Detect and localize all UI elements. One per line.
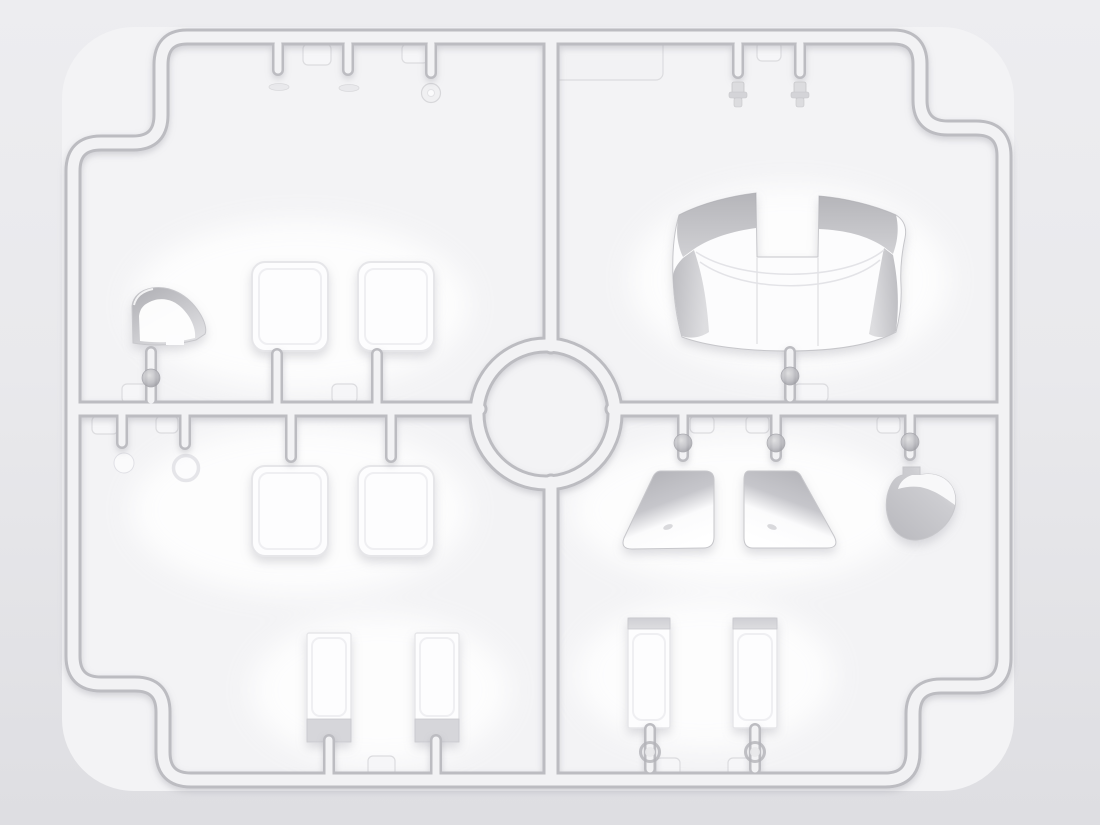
runner-tab — [746, 416, 769, 433]
ghost-lens-part: Faint lens ring — [174, 456, 199, 481]
stem-loop-hole — [787, 353, 794, 366]
side-window-part: Side window glazing pane 3 — [252, 466, 328, 556]
runner-tab — [156, 416, 178, 433]
ball-joint — [767, 434, 785, 452]
sprue-render-stage: Small curved windscreen Side window glaz… — [0, 0, 1100, 825]
glazing-strip-part: Glazing strip — [307, 633, 351, 742]
glazing-strip-part: Glazing strip — [628, 618, 670, 728]
ball-joint — [674, 434, 692, 452]
side-window-part: Side window glazing pane 1 — [252, 262, 328, 351]
runner-tab — [877, 416, 900, 433]
glazing-strip-part: Glazing strip — [415, 633, 459, 742]
runner-tab — [332, 384, 357, 403]
sprue-render: Small curved windscreen Side window glaz… — [0, 0, 1100, 825]
lens-sliver-part: Small lens sliver — [339, 85, 359, 92]
ghost-lens-part: Faint round lens — [114, 453, 134, 473]
lens-ring-part: Round light lens — [422, 84, 441, 103]
runner-tab — [402, 44, 428, 63]
ball-joint — [781, 367, 799, 385]
ball-joint — [142, 369, 160, 387]
runner-tab — [303, 44, 331, 65]
glazing-strip-part: Glazing strip — [733, 618, 777, 728]
lens-sliver-part: Small lens sliver — [269, 84, 289, 91]
runner-tab — [794, 384, 828, 402]
runner-tab — [92, 416, 118, 434]
side-window-part: Side window glazing pane 2 — [358, 262, 434, 351]
side-window-part: Side window glazing pane 4 — [358, 466, 434, 556]
ball-joint — [901, 433, 919, 451]
runner-tab — [690, 416, 714, 433]
